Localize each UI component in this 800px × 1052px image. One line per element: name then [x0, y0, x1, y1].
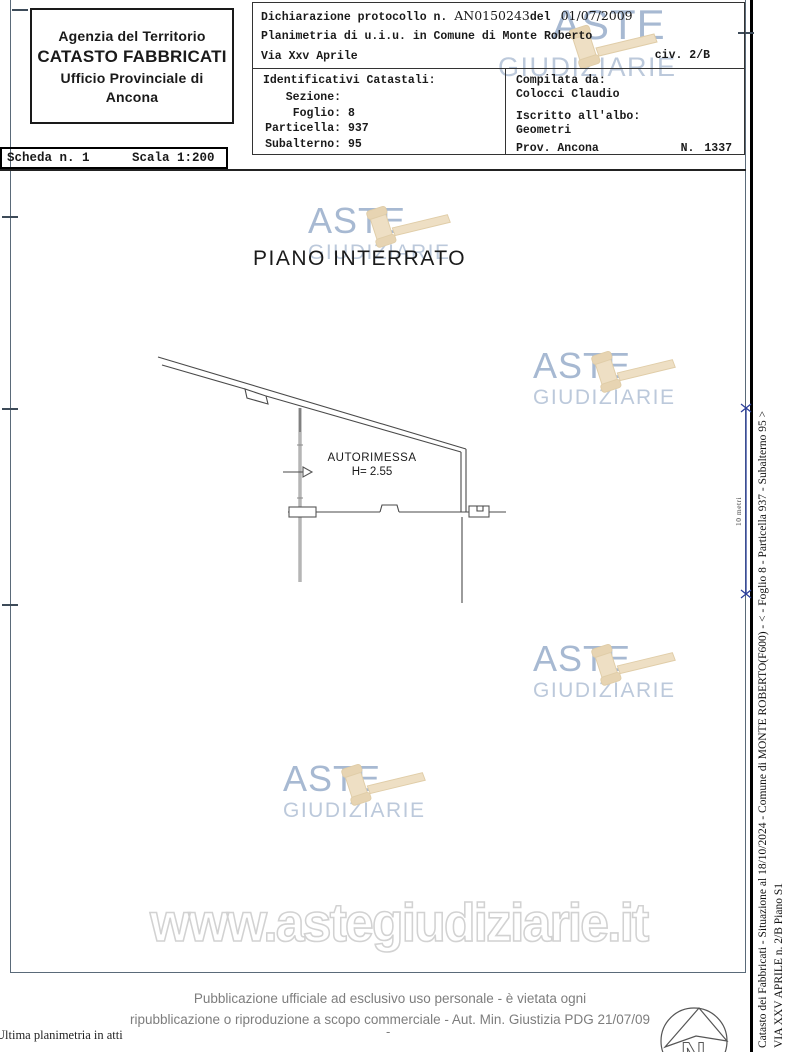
fold-mark [2, 408, 18, 410]
url-watermark: www.astegiudiziarie.it [150, 892, 647, 954]
declaration-top-section: Dichiarazione protocollo n. AN0150243del… [253, 3, 744, 69]
agency-name: Agenzia del Territorio [58, 28, 205, 44]
street-line: Via Xxv Aprile [261, 50, 358, 63]
register-value: Geometri [516, 124, 744, 138]
gavel-icon [585, 348, 680, 396]
protocol-date: 01/07/2009 [561, 8, 633, 23]
sheet-number: Scheda n. 1 [2, 151, 132, 165]
office-city: Ancona [106, 89, 159, 105]
declaration-bottom-section: Identificativi Catastali: Sezione: Fogli… [253, 69, 744, 154]
civic-number: civ. 2/B [655, 49, 710, 62]
office-line: Ufficio Provinciale di [61, 70, 204, 86]
fold-mark [12, 9, 28, 11]
aste-watermark: ASTE GIUDIZIARIE [533, 641, 703, 701]
declaration-box: Dichiarazione protocollo n. AN0150243del… [252, 2, 745, 155]
frame-left-border [10, 0, 11, 972]
province-row: Prov. Ancona N.1337 [516, 142, 732, 156]
last-plan-note: Ultima planimetria in atti [0, 1028, 123, 1043]
cadastral-identifiers: Identificativi Catastali: Sezione: Fogli… [253, 69, 506, 154]
identifier-row: Particella: 937 [253, 121, 505, 137]
sidebar-cadastre-line: Catasto dei Fabbricati - Situazione al 1… [757, 411, 769, 1048]
particella-value: 937 [341, 121, 369, 137]
floor-title: PIANO INTERRATO [253, 247, 466, 271]
room-label: AUTORIMESSA [302, 452, 442, 464]
svg-text:N: N [681, 1036, 706, 1052]
floor-plan-drawing [140, 340, 540, 670]
sezione-value [341, 90, 348, 106]
foglio-value: 8 [341, 106, 355, 122]
fold-mark [2, 216, 18, 218]
gavel-icon [585, 641, 680, 689]
subalterno-label: Subalterno: [253, 137, 341, 153]
map-scale: Scala 1:200 [132, 151, 215, 165]
compiler-name: Colocci Claudio [516, 88, 744, 102]
north-arrow-icon: N [650, 1002, 745, 1052]
foglio-label: Foglio: [253, 106, 341, 122]
fold-mark [2, 604, 18, 606]
identifier-row: Subalterno: 95 [253, 137, 505, 153]
room-height-label: H= 2.55 [302, 466, 442, 478]
protocol-line: Dichiarazione protocollo n. AN0150243del… [261, 8, 633, 24]
protocol-prefix: Dichiarazione protocollo n. [261, 11, 454, 24]
gavel-icon [360, 203, 455, 251]
subalterno-value: 95 [341, 137, 362, 153]
aste-watermark: ASTE GIUDIZIARIE [283, 761, 453, 821]
aste-watermark: ASTE GIUDIZIARIE [533, 348, 703, 408]
footer-dash: - [386, 1024, 390, 1039]
identifiers-title: Identificativi Catastali: [253, 74, 505, 87]
agency-header-box: Agenzia del Territorio CATASTO FABBRICAT… [30, 8, 234, 124]
compiler-box: Compilata da: Colocci Claudio Iscritto a… [506, 69, 744, 154]
province: Prov. Ancona [516, 142, 599, 156]
protocol-del: del [530, 11, 551, 24]
protocol-number: AN0150243 [454, 8, 530, 23]
identifier-row: Foglio: 8 [253, 106, 505, 122]
planimetria-line: Planimetria di u.i.u. in Comune di Monte… [261, 30, 592, 43]
sheet-scale-strip: Scheda n. 1 Scala 1:200 [0, 147, 228, 169]
scale-bar-label: 10 metri [734, 497, 743, 526]
sezione-label: Sezione: [253, 90, 341, 106]
particella-label: Particella: [253, 121, 341, 137]
gavel-icon [335, 761, 430, 809]
frame-top-border [0, 169, 746, 171]
compiled-by-label: Compilata da: [516, 74, 744, 88]
identifier-row: Sezione: [253, 90, 505, 106]
register-label: Iscritto all'albo: [516, 110, 744, 124]
register-number: N.1337 [681, 142, 732, 156]
catasto-title: CATASTO FABBRICATI [37, 47, 226, 67]
frame-bottom-border [10, 972, 746, 973]
